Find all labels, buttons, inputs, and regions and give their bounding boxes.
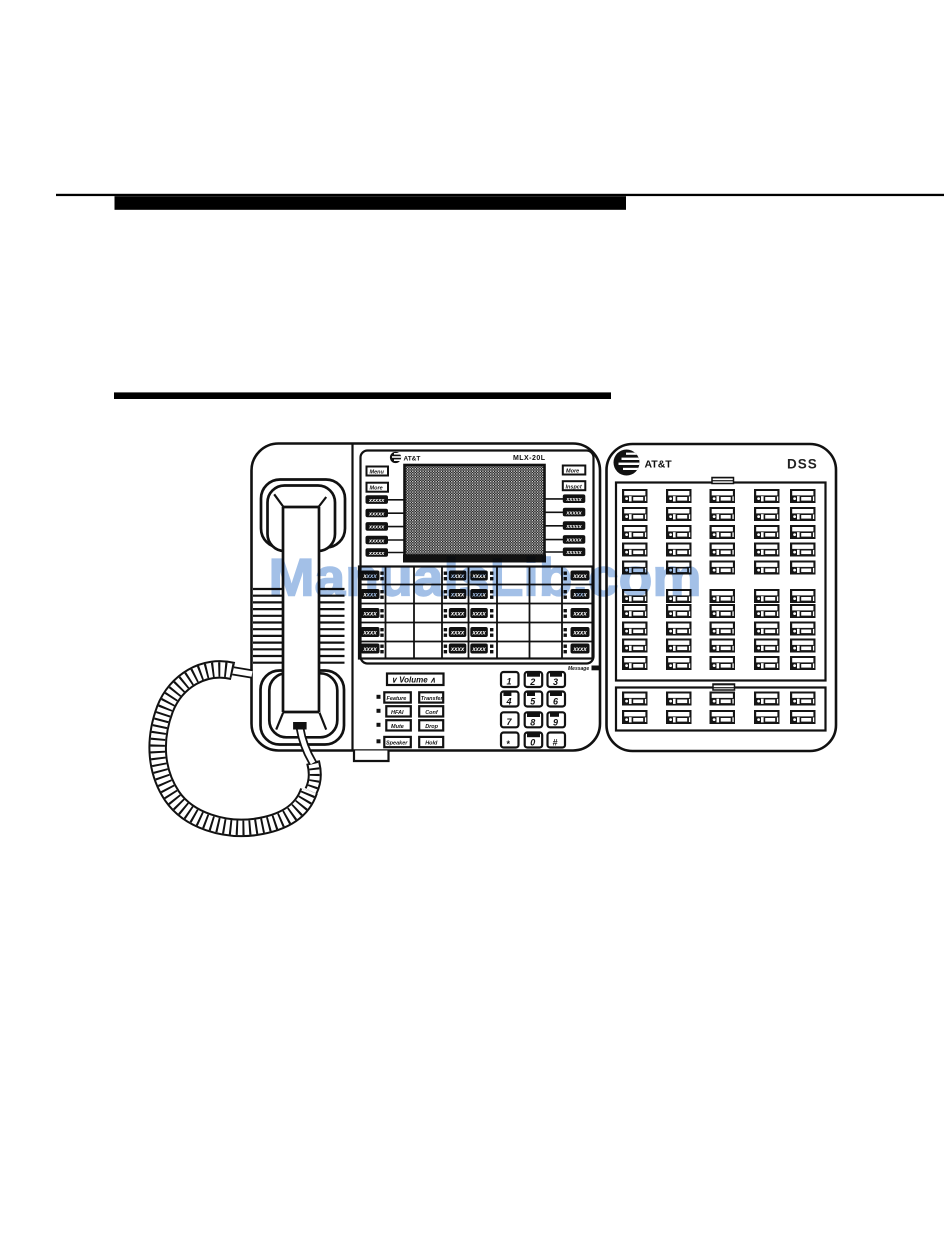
svg-text:Hold: Hold xyxy=(425,741,438,747)
svg-text:Conf: Conf xyxy=(425,710,439,716)
svg-text:HFAI: HFAI xyxy=(391,710,404,716)
svg-text:AT&T: AT&T xyxy=(645,459,673,471)
svg-text:Mute: Mute xyxy=(391,724,404,730)
svg-text:Transfer: Transfer xyxy=(421,696,444,702)
svg-text:AT&T: AT&T xyxy=(404,456,421,463)
svg-text:9: 9 xyxy=(553,717,558,727)
svg-text:ManualsLib.com: ManualsLib.com xyxy=(269,549,702,608)
svg-text:DSS: DSS xyxy=(787,457,818,472)
svg-text:∨ Volume ∧: ∨ Volume ∧ xyxy=(391,676,436,685)
svg-text:Drop: Drop xyxy=(425,724,438,730)
svg-text:MLX-20L: MLX-20L xyxy=(513,455,546,462)
svg-text:3: 3 xyxy=(553,677,558,687)
svg-text:Speaker: Speaker xyxy=(386,741,408,747)
svg-text:Message: Message xyxy=(568,666,589,672)
svg-text:2: 2 xyxy=(529,677,535,687)
svg-text:Inspct: Inspct xyxy=(566,484,583,490)
svg-text:Menu: Menu xyxy=(370,470,385,476)
svg-text:More: More xyxy=(566,469,579,475)
svg-text:More: More xyxy=(370,486,383,492)
svg-text:#: # xyxy=(553,738,558,748)
svg-text:1: 1 xyxy=(507,677,512,687)
svg-text:8: 8 xyxy=(530,717,535,727)
svg-text:*: * xyxy=(507,739,511,749)
svg-text:Feature: Feature xyxy=(387,696,407,702)
svg-text:4: 4 xyxy=(506,697,512,707)
svg-text:0: 0 xyxy=(530,738,535,748)
